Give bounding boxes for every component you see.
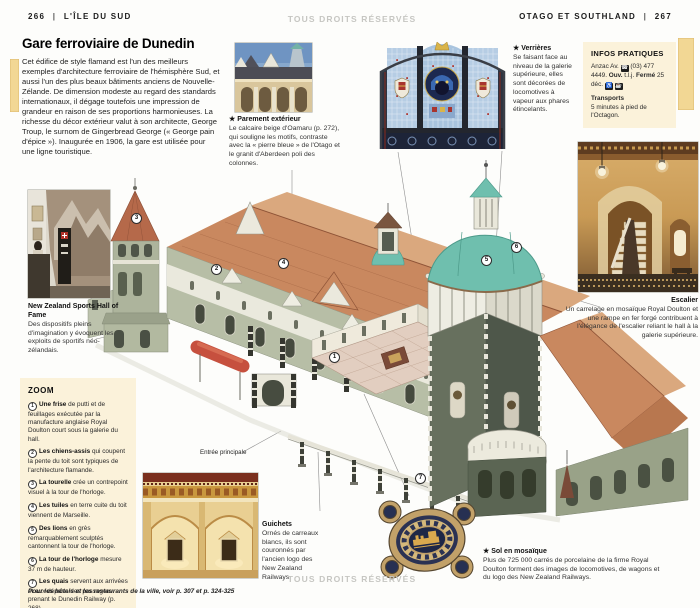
circled-number: 5 [28,526,37,535]
closed-label: Fermé [636,72,655,79]
parement-caption: ★ Parement extérieur Le calcaire beige d… [229,115,343,169]
callout-7-quais: 7 [415,473,426,484]
escalier-caption-body: Un carrelage en mosaïque Royal Doulton e… [560,306,698,341]
exterior-facade-photo [235,43,312,112]
hall-of-fame-caption: New Zealand Sports Hall of Fame Des disp… [28,302,120,356]
hall-of-fame-caption-body: Des dispositifs pleins d'imagination y é… [28,321,120,356]
intro-text: Cet édifice de style flamand est l'un de… [22,57,220,157]
hall-of-fame-caption-title: New Zealand Sports Hall of Fame [28,302,120,320]
zoom-item-5: 5Des lions en grès remarquablement sculp… [28,525,128,551]
zoom-box-title: ZOOM [28,386,128,395]
copyright-watermark-bottom: TOUS DROITS RÉSERVÉS [272,574,432,584]
parement-caption-body: Le calcaire beige d'Oamaru (p. 272), qui… [229,125,343,169]
phone-icon: ☎ [621,65,629,72]
guichets-caption-title: Guichets [262,520,326,529]
verrieres-caption-title: ★ Verrières [513,44,577,53]
ticket-windows-photo [143,473,258,578]
callout-6-tour-horloge: 6 [511,242,522,253]
circled-number: 2 [28,449,37,458]
callout-4-tuiles: 4 [278,258,289,269]
mosaic-floor-caption-title: ★ Sol en mosaïque [483,547,668,556]
stained-glass-photo [377,32,508,149]
zoom-item-1: 1Une frise de putti et de feuillages exé… [28,401,128,444]
mosaic-floor-caption: ★ Sol en mosaïque Plus de 725 000 carrés… [483,547,668,583]
practical-info-box: INFOS PRATIQUES Anzac Av. ☎ (03) 477 444… [583,42,676,128]
transport-text: 5 minutes à pied de l'Octagon. [591,104,669,122]
zoom-item-3: 3La tourelle crée un contrepoint visuel … [28,479,128,497]
escalier-caption-title: Escalier [560,296,698,305]
callout-5-lions: 5 [481,255,492,266]
staircase-photo [578,142,698,292]
circled-number: 4 [28,503,37,512]
wheelchair-icon: ♿ [605,83,613,90]
practical-info-title: INFOS PRATIQUES [591,49,669,58]
circled-number: 3 [28,480,37,489]
cafe-icon: ☕ [615,83,623,90]
callout-3-tourelle: 3 [131,213,142,224]
guidebook-spread: 266 | L'ÎLE DU SUD TOUS DROITS RÉSERVÉS … [0,0,700,608]
page-title: Gare ferroviaire de Dunedin [22,36,220,51]
verrieres-caption-body: Se faisant face au niveau de la galerie … [513,54,577,115]
zoom-item-6: 6La tour de l'horloge mesure 37 m de hau… [28,556,128,574]
zoom-item-4: 4Les tuiles en terre cuite du toit vienn… [28,502,128,520]
guichets-caption: Guichets Ornés de carreaux blancs, ils s… [262,520,326,582]
callout-1-frise: 1 [329,352,340,363]
mosaic-floor-caption-body: Plus de 725 000 carrés de porcelaine de … [483,557,668,583]
callout-2-chiens-assis: 2 [211,264,222,275]
practical-info-contact: Anzac Av. ☎ (03) 477 4449. Ouv. t.l.j. F… [591,63,669,90]
mosaic-photo [379,501,475,578]
hall-of-fame-photo [28,190,110,298]
verrieres-caption: ★ Verrières Se faisant face au niveau de… [513,44,577,115]
zoom-key-box: ZOOM 1Une frise de putti et de feuillage… [20,378,136,608]
open-label: Ouv. [609,72,623,79]
intro-block: Gare ferroviaire de Dunedin Cet édifice … [22,36,220,157]
footer-cross-reference: Pour les hôtels et les restaurants de la… [28,588,234,595]
open-value: t.l.j. [624,72,634,79]
parement-caption-title: ★ Parement extérieur [229,115,343,124]
entrance-label: Entrée principale [200,449,246,456]
transport-heading: Transports [591,95,669,104]
circled-number: 7 [28,579,37,588]
circled-number: 1 [28,402,37,411]
zoom-item-2: 2Les chiens-assis qui coupent la pente d… [28,448,128,474]
address: Anzac Av. [591,63,619,70]
circled-number: 6 [28,557,37,566]
escalier-caption: Escalier Un carrelage en mosaïque Royal … [560,296,698,341]
